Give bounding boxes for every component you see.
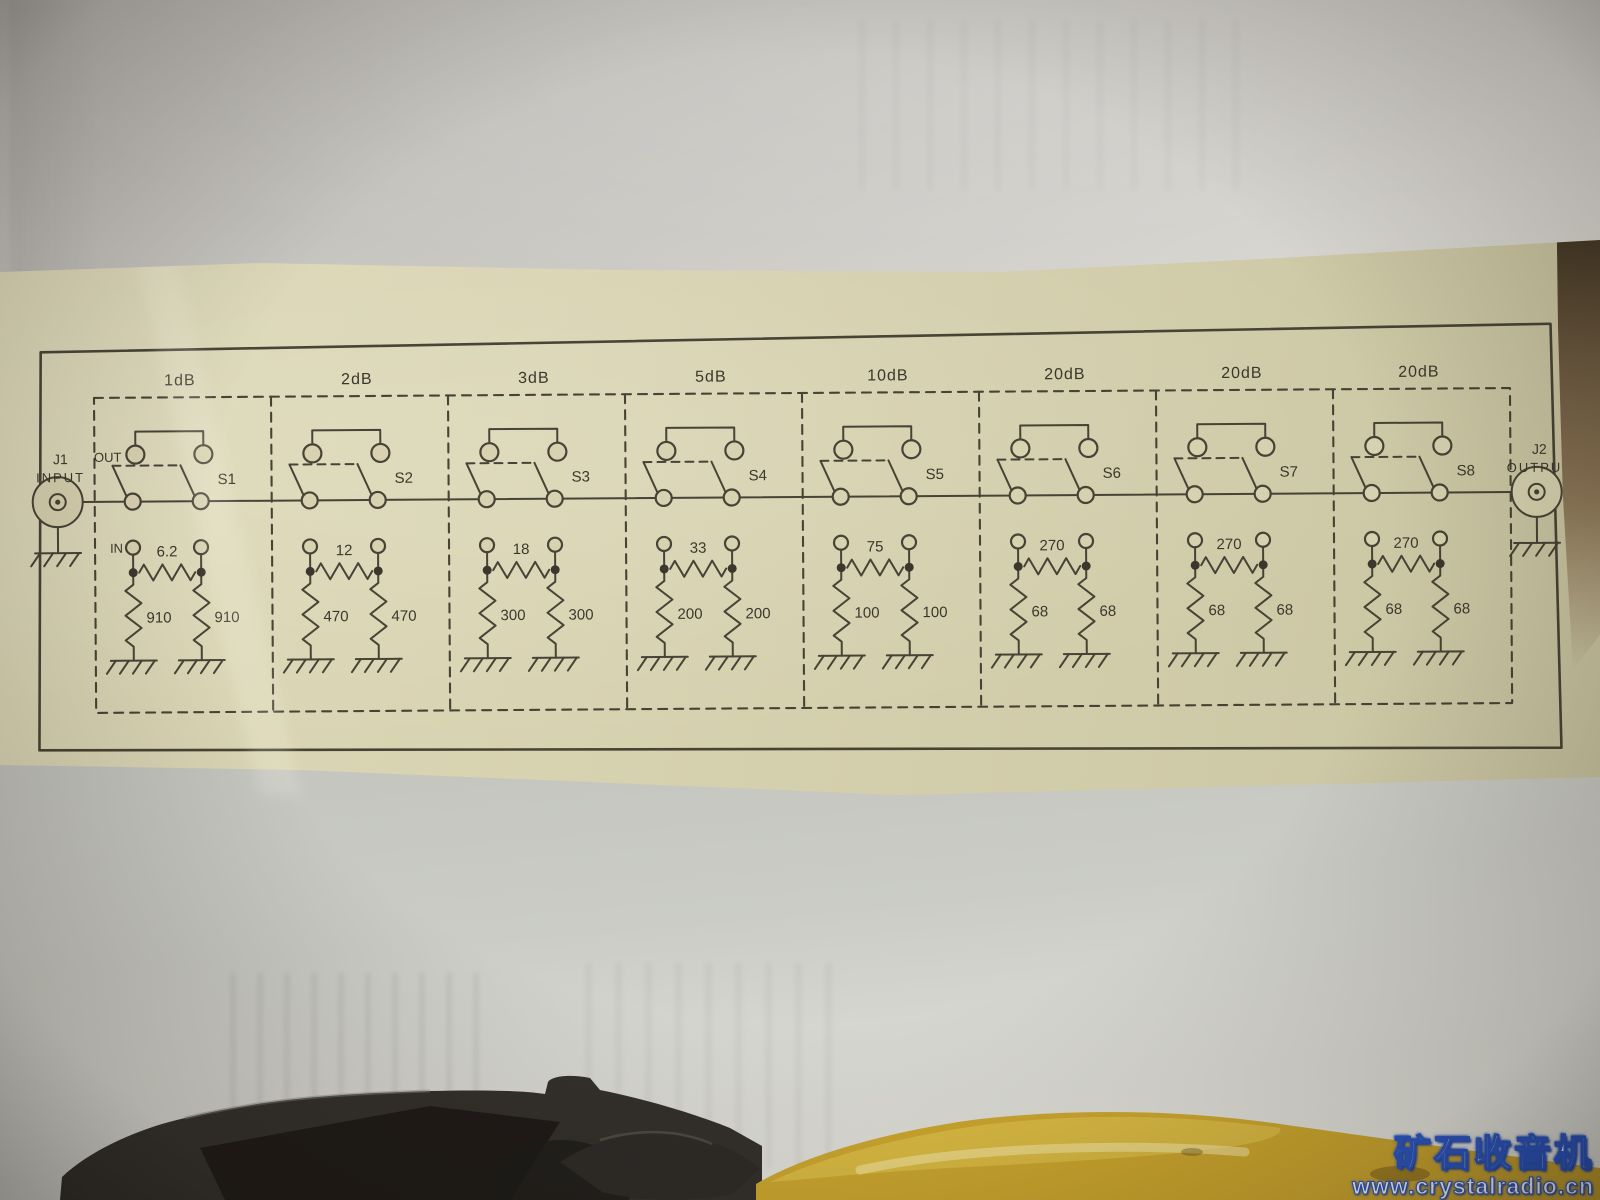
watermark: 矿石收音机 www.crystalradio.cn [1352,1135,1594,1198]
pliers [60,1076,762,1200]
photo: 1dBS16.2910910OUTIN2dBS2124704703dBS3183… [0,0,1600,1200]
tools-layer [0,0,1600,1200]
watermark-title: 矿石收音机 [1352,1135,1594,1174]
watermark-url: www.crystalradio.cn [1352,1174,1594,1198]
